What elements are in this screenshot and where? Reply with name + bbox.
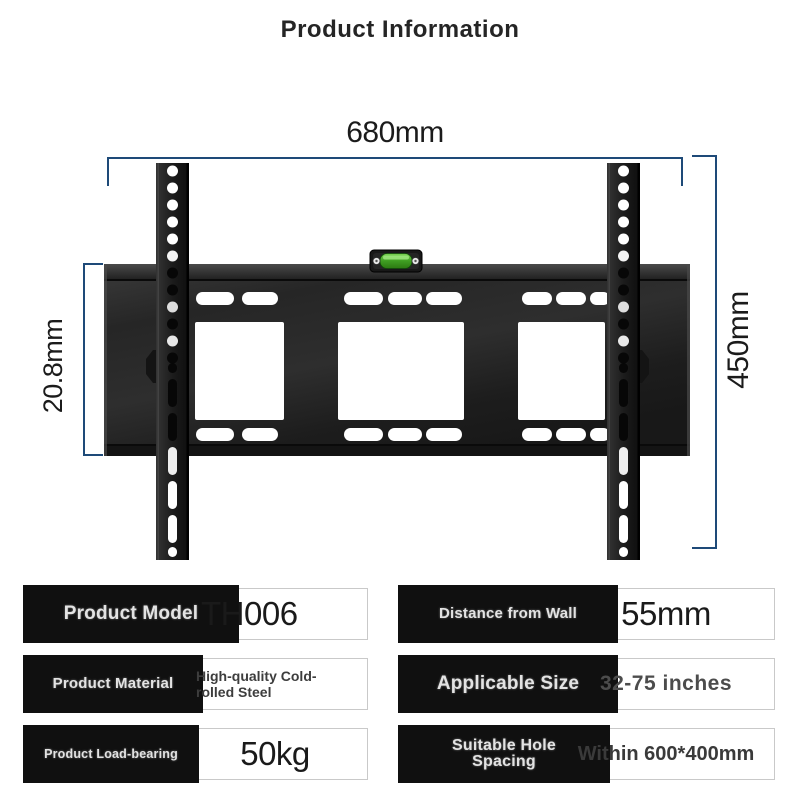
spec-row-distance-wall: Distance from Wall 55mm — [398, 588, 775, 640]
spec-value-product-model: TH006 — [183, 589, 367, 639]
spec-value-load-bearing: 50kg — [183, 729, 367, 779]
spec-row-hole-spacing: Suitable Hole Spacing Within 600*400mm — [398, 728, 775, 780]
plate-cutout-right — [518, 322, 605, 420]
vesa-rail-left — [156, 163, 189, 560]
bubble-level-icon — [370, 250, 422, 272]
spec-table-left-column: Product Model TH006 Product Material Hig… — [23, 588, 368, 798]
bracket-diagram: 680mm 450mm 20.8mm — [0, 0, 800, 580]
spec-table-right-column: Distance from Wall 55mm Applicable Size … — [398, 588, 775, 798]
spec-row-product-material: Product Material High-quality Cold-rolle… — [23, 658, 368, 710]
dimension-width-label: 680mm — [346, 116, 444, 149]
product-information-page: Product Information — [0, 0, 800, 800]
plate-cutout-left — [195, 322, 284, 420]
plate-slots-top — [196, 292, 610, 305]
dimension-depth-label: 20.8mm — [38, 319, 68, 414]
dimension-height — [692, 156, 716, 548]
spec-value-hole-spacing: Within 600*400mm — [558, 729, 774, 779]
plate-cutout-middle — [338, 322, 464, 420]
spec-row-applicable-size: Applicable Size 32-75 inches — [398, 658, 775, 710]
wall-plate — [104, 264, 690, 456]
dimension-width — [108, 158, 682, 186]
spec-label-product-material: Product Material — [23, 655, 203, 713]
vesa-rail-right — [607, 163, 640, 560]
plate-slots-bottom — [196, 428, 610, 441]
spec-value-distance-wall: 55mm — [558, 589, 774, 639]
spec-row-load-bearing: Product Load-bearing 50kg — [23, 728, 368, 780]
spec-value-applicable-size: 32-75 inches — [558, 659, 774, 709]
dimension-depth — [84, 264, 103, 455]
spec-label-load-bearing: Product Load-bearing — [23, 725, 199, 783]
dimension-height-label: 450mm — [722, 291, 755, 389]
spec-row-product-model: Product Model TH006 — [23, 588, 368, 640]
spec-value-product-material: High-quality Cold-rolled Steel — [183, 659, 367, 709]
